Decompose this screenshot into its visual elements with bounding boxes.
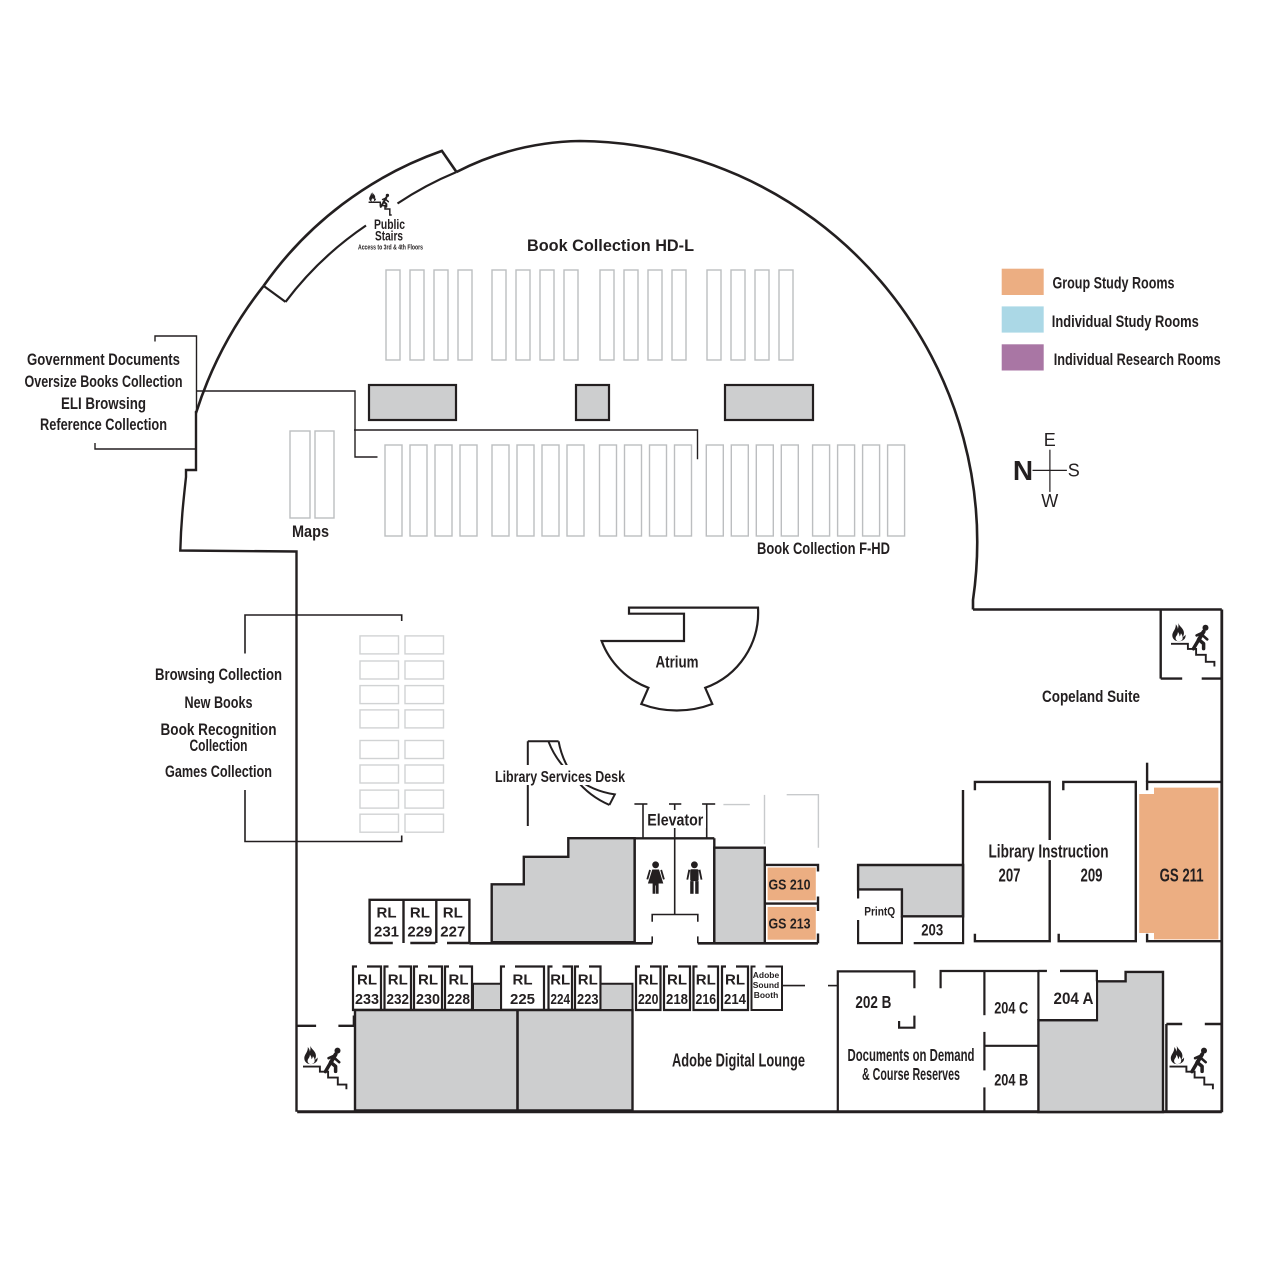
svg-text:Reference Collection: Reference Collection [40,415,167,434]
svg-text:S: S [1068,460,1080,480]
svg-text:RL: RL [377,905,397,922]
svg-text:230: 230 [416,991,440,1008]
svg-text:N: N [1013,455,1033,486]
svg-text:Browsing Collection: Browsing Collection [155,665,282,684]
svg-text:229: 229 [407,924,432,941]
svg-text:232: 232 [387,991,410,1008]
svg-text:204 B: 204 B [994,1071,1028,1090]
svg-text:RL: RL [357,972,377,989]
svg-text:Sound: Sound [753,980,779,990]
svg-text:204 A: 204 A [1054,990,1094,1008]
svg-text:Atrium: Atrium [656,654,699,672]
svg-text:RL: RL [418,972,438,989]
svg-text:Copeland Suite: Copeland Suite [1042,688,1140,706]
svg-text:Adobe: Adobe [753,970,780,980]
svg-text:ELI Browsing: ELI Browsing [61,394,146,413]
svg-text:Oversize Books Collection: Oversize Books Collection [25,372,183,391]
svg-text:Games Collection: Games Collection [165,762,272,781]
svg-text:228: 228 [447,991,470,1008]
svg-text:Maps: Maps [292,522,329,541]
svg-text:214: 214 [724,991,747,1008]
svg-text:Individual Research Rooms: Individual Research Rooms [1054,350,1221,369]
svg-text:231: 231 [374,924,399,941]
svg-text:Book Collection HD-L: Book Collection HD-L [527,237,694,255]
svg-text:203: 203 [921,922,943,940]
svg-text:New Books: New Books [185,693,253,712]
svg-text:218: 218 [666,991,688,1008]
svg-text:Book Collection F-HD: Book Collection F-HD [757,539,890,558]
svg-text:227: 227 [440,924,465,941]
svg-text:RL: RL [513,972,533,989]
svg-text:204 C: 204 C [994,999,1028,1018]
svg-text:RL: RL [449,972,469,989]
svg-text:233: 233 [355,991,379,1008]
svg-text:220: 220 [638,991,659,1008]
svg-text:RL: RL [550,972,570,989]
svg-text:224: 224 [550,991,570,1008]
svg-text:225: 225 [510,991,535,1008]
svg-text:Adobe Digital Lounge: Adobe Digital Lounge [672,1051,805,1071]
svg-text:Government Documents: Government Documents [27,350,180,369]
svg-text:Individual Study Rooms: Individual Study Rooms [1052,312,1199,331]
svg-text:Collection: Collection [190,736,248,755]
svg-text:& Course Reserves: & Course Reserves [862,1064,960,1084]
svg-text:RL: RL [667,972,687,989]
svg-text:W: W [1041,491,1058,511]
svg-text:RL: RL [578,972,598,989]
svg-text:216: 216 [696,991,717,1008]
svg-text:RL: RL [725,972,745,989]
svg-text:202 B: 202 B [855,992,891,1012]
svg-text:Booth: Booth [754,990,779,1000]
svg-text:PrintQ: PrintQ [864,905,895,919]
svg-text:RL: RL [388,972,408,989]
svg-text:Group Study Rooms: Group Study Rooms [1053,274,1175,293]
svg-text:RL: RL [696,972,716,989]
svg-text:RL: RL [410,905,430,922]
svg-text:Library Instruction: Library Instruction [989,842,1109,862]
svg-text:209: 209 [1081,866,1103,886]
svg-text:RL: RL [638,972,658,989]
svg-text:Stairs: Stairs [375,229,403,244]
svg-text:223: 223 [577,991,599,1008]
svg-text:E: E [1044,430,1056,450]
svg-text:Elevator: Elevator [647,811,703,830]
svg-text:Documents on Demand: Documents on Demand [848,1045,975,1065]
svg-text:Access to 3rd & 4th Floors: Access to 3rd & 4th Floors [358,243,423,252]
svg-text:GS 213: GS 213 [769,916,811,933]
svg-text:RL: RL [443,905,463,922]
svg-text:207: 207 [999,866,1021,886]
svg-text:GS 211: GS 211 [1160,866,1204,886]
svg-text:GS 210: GS 210 [769,877,811,894]
svg-text:Library Services Desk: Library Services Desk [495,769,625,786]
